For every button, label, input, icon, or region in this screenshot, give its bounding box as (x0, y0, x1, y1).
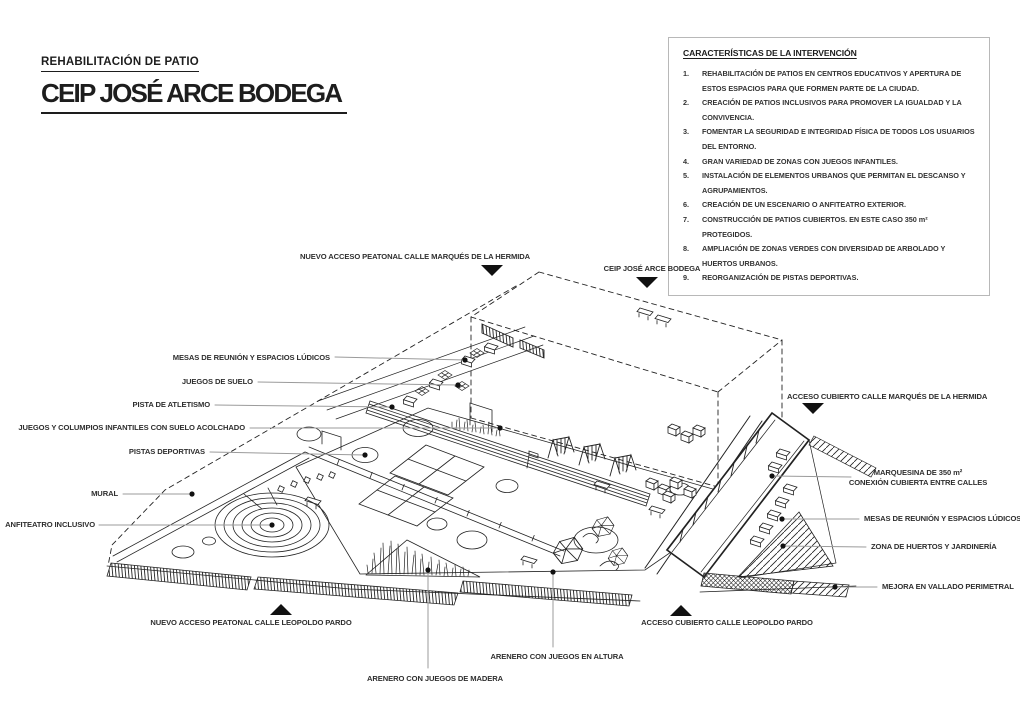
fence-strip (520, 340, 544, 358)
bench (404, 396, 418, 407)
callout-marquesina: MARQUESINA DE 350 m² CONEXIÓN CUBIERTA E… (842, 468, 994, 487)
access-marker-down-icon (802, 403, 824, 414)
callout-anfiteatro: ANFITEATRO INCLUSIVO (0, 520, 95, 530)
bench (637, 308, 653, 320)
callout-arenero-altura: ARENERO CON JUEGOS EN ALTURA (457, 652, 657, 662)
goal-frame (322, 431, 341, 450)
callout-acceso-peatonal-hermida: NUEVO ACCESO PEATONAL CALLE MARQUÉS DE L… (215, 252, 615, 262)
callout-pistas-deportivas: PISTAS DEPORTIVAS (5, 447, 205, 457)
callout-ceip: CEIP JOSÉ ARCE BODEGA (552, 264, 752, 274)
callout-mesas-der: MESAS DE REUNIÓN Y ESPACIOS LÚDICOS (864, 514, 1020, 524)
bench (521, 556, 537, 568)
access-marker-up-icon (670, 605, 692, 616)
callout-acceso-cubierto-leopoldo: ACCESO CUBIERTO CALLE LEOPOLDO PARDO (577, 618, 877, 628)
callout-arenero-madera: ARENERO CON JUEGOS DE MADERA (335, 674, 535, 684)
plan-sheet: REHABILITACIÓN DE PATIO CEIP JOSÉ ARCE B… (0, 0, 1020, 720)
sandpit-wooden-poles (366, 540, 480, 577)
callout-juegos-suelo: JUEGOS DE SUELO (3, 377, 253, 387)
callout-acceso-peatonal-leopoldo: NUEVO ACCESO PEATONAL CALLE LEOPOLDO PAR… (101, 618, 401, 628)
callout-vallado: MEJORA EN VALLADO PERIMETRAL (882, 582, 1014, 592)
access-marker-up-icon (270, 604, 292, 615)
climbing-dome (608, 548, 628, 566)
perimeter-fences (107, 563, 849, 606)
callout-acceso-cubierto-hermida: ACCESO CUBIERTO CALLE MARQUÉS DE LA HERM… (787, 392, 987, 402)
school-building-outline (471, 272, 782, 487)
callout-mural: MURAL (18, 489, 118, 499)
callout-mesas-izq: MESAS DE REUNIÓN Y ESPACIOS LÚDICOS (80, 353, 330, 363)
access-marker-down-icon (636, 277, 658, 288)
callout-huertos: ZONA DE HUERTOS Y JARDINERÍA (871, 542, 997, 552)
access-marker-down-icon (481, 265, 503, 276)
athletics-track (366, 401, 650, 506)
callout-columpios: JUEGOS Y COLUMPIOS INFANTILES CON SUELO … (0, 423, 245, 433)
climbing-dome (553, 537, 582, 563)
bench (649, 506, 665, 518)
fence-strip (482, 324, 513, 347)
callout-pista-atletismo: PISTA DE ATLETISMO (10, 400, 210, 410)
floor-game (415, 387, 429, 396)
play-grass (452, 418, 500, 436)
amphitheatre (172, 472, 335, 558)
sports-courts (297, 403, 690, 553)
callout-marquesina-line1: MARQUESINA DE 350 m² (874, 468, 962, 477)
bench (655, 315, 671, 327)
bench (485, 343, 499, 354)
callout-marquesina-line2: CONEXIÓN CUBIERTA ENTRE CALLES (849, 478, 987, 487)
cube-seats (646, 424, 705, 503)
